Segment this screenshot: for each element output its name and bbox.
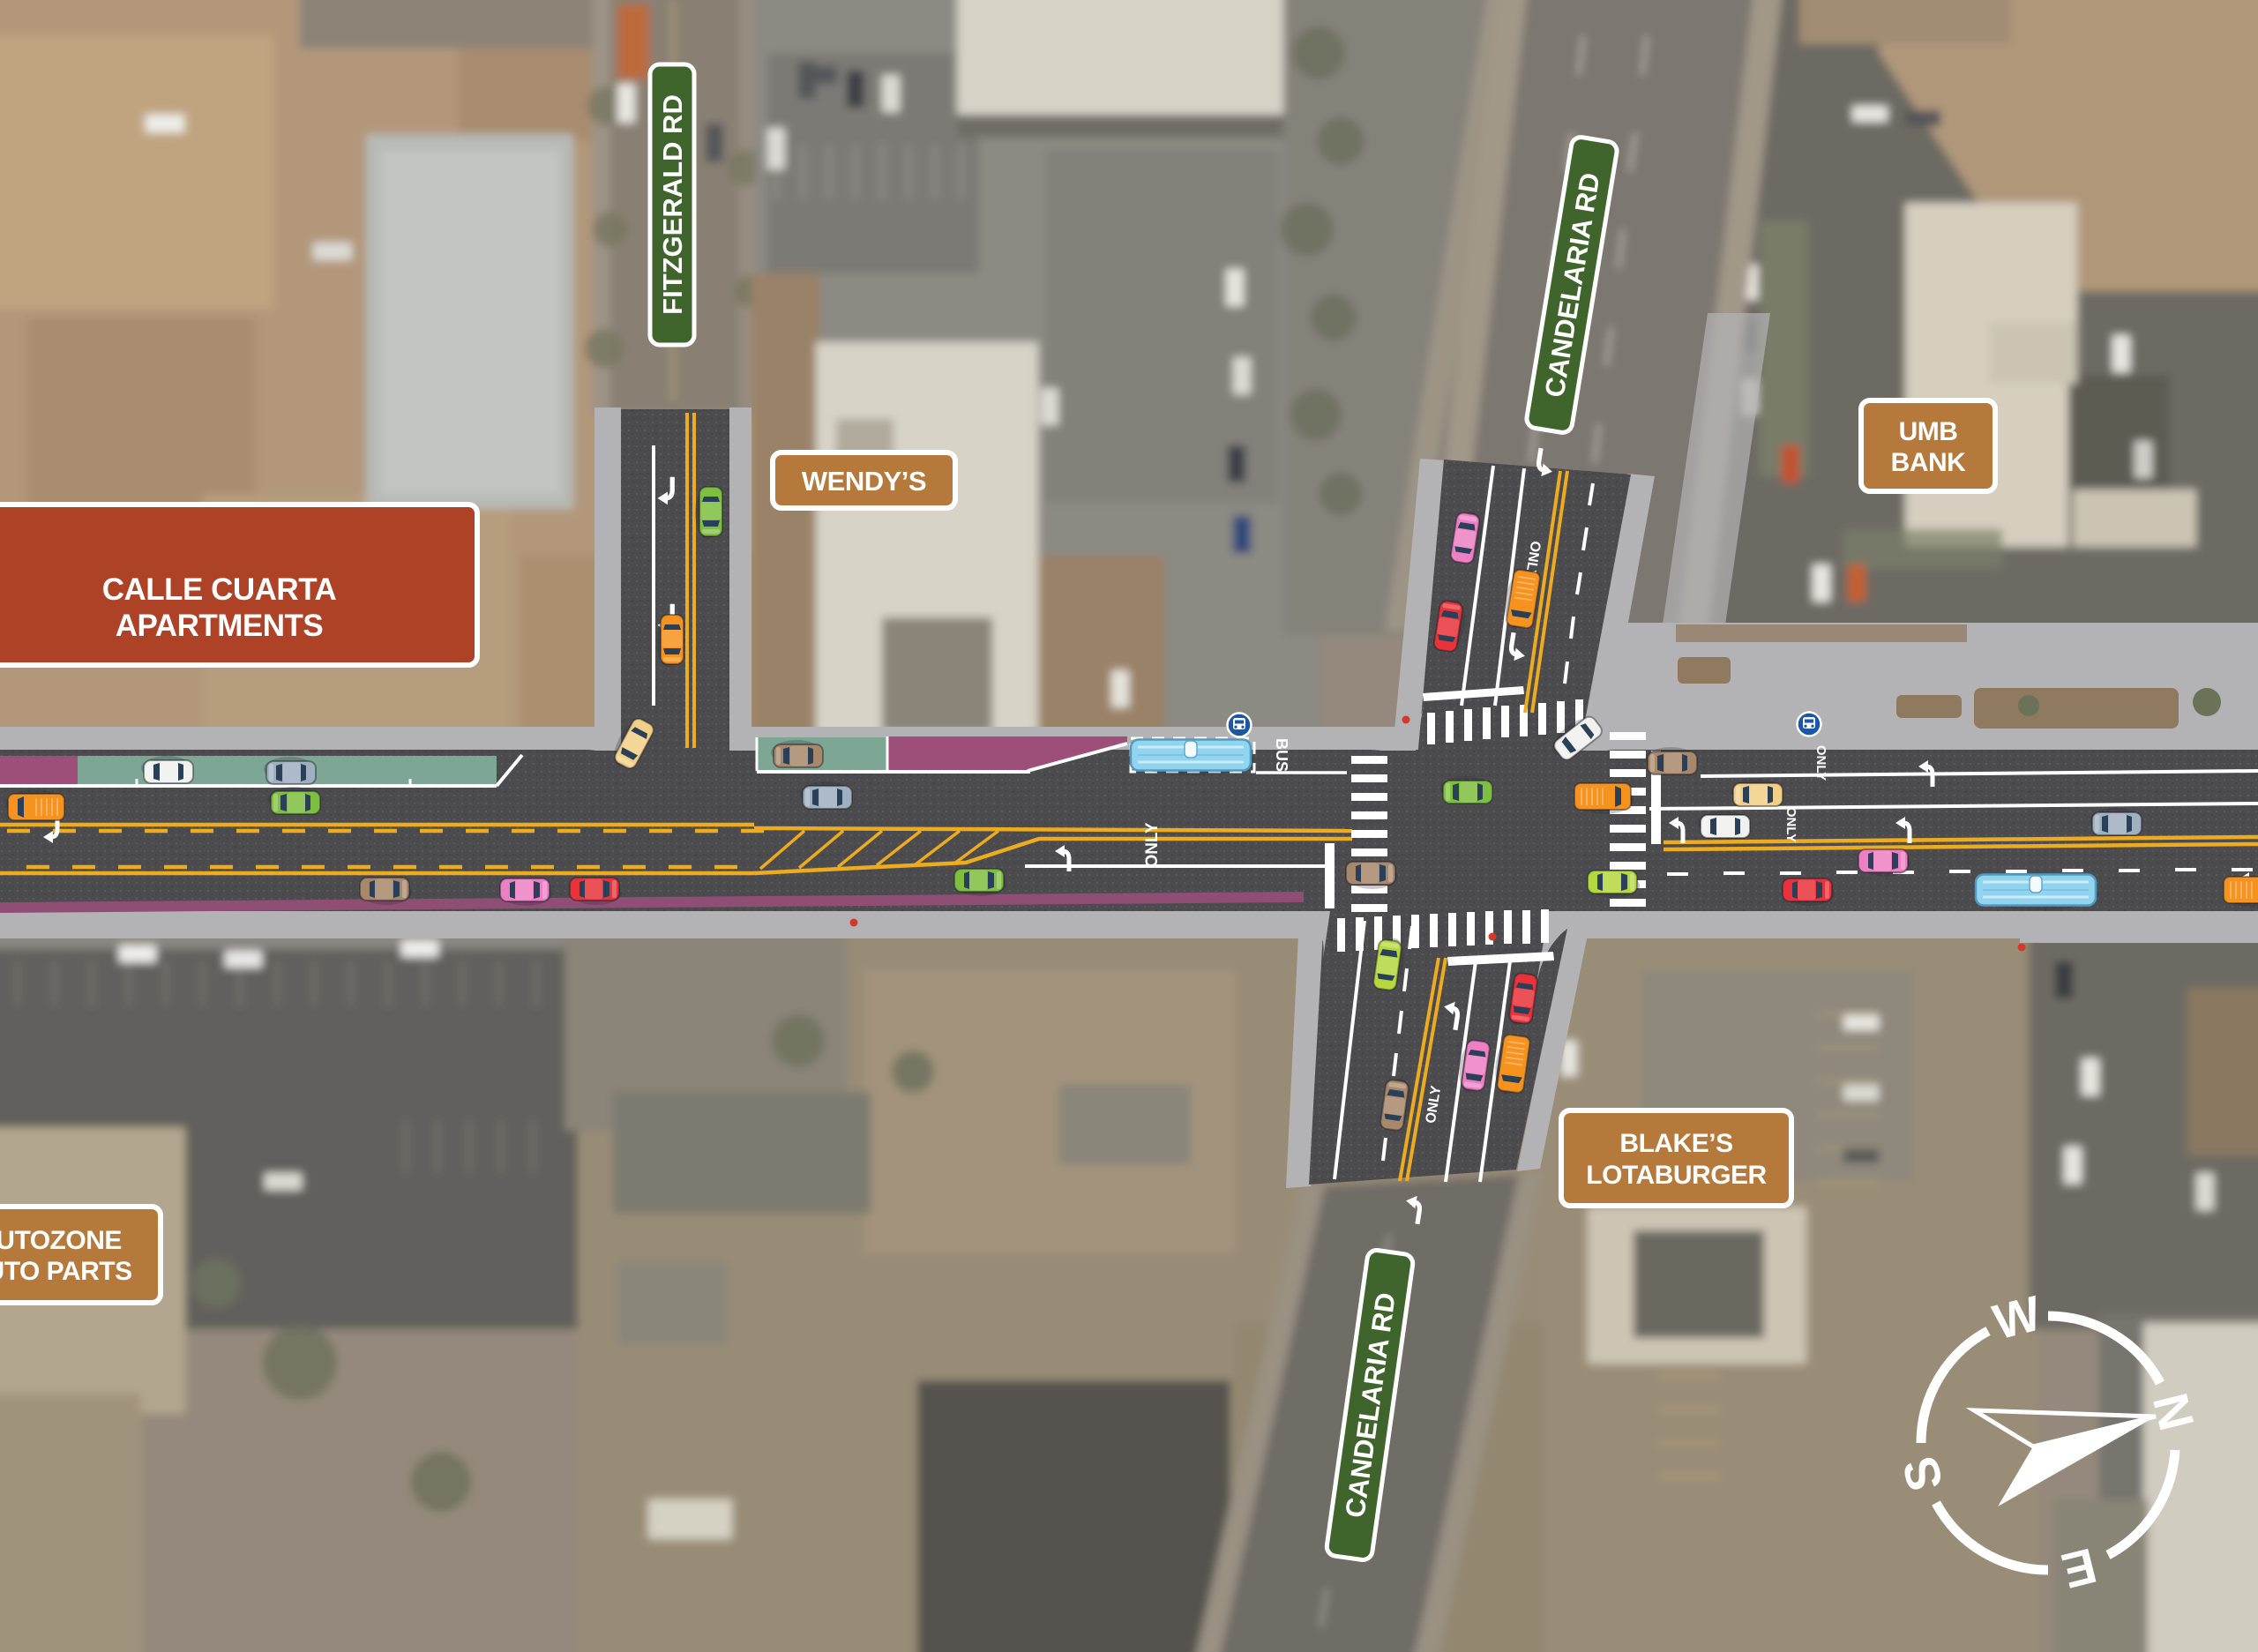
svg-text:AUTO PARTS: AUTO PARTS <box>0 1257 132 1286</box>
svg-text:ONLY: ONLY <box>1813 745 1828 781</box>
svg-text:WENDY’S: WENDY’S <box>802 466 926 497</box>
svg-text:BLAKE’S: BLAKE’S <box>1619 1129 1732 1158</box>
svg-text:BANK: BANK <box>1891 448 1966 477</box>
svg-text:UMB: UMB <box>1899 417 1958 446</box>
svg-text:ONLY: ONLY <box>1783 807 1798 842</box>
svg-text:ONLY: ONLY <box>1143 822 1162 867</box>
svg-text:BUS: BUS <box>1273 738 1290 772</box>
svg-text:AUTOZONE: AUTOZONE <box>0 1226 122 1255</box>
svg-text:FITZGERALD RD: FITZGERALD RD <box>657 94 688 315</box>
svg-text:LOTABURGER: LOTABURGER <box>1586 1161 1767 1190</box>
svg-text:APARTMENTS: APARTMENTS <box>116 609 323 643</box>
svg-text:CALLE CUARTA: CALLE CUARTA <box>102 572 337 607</box>
